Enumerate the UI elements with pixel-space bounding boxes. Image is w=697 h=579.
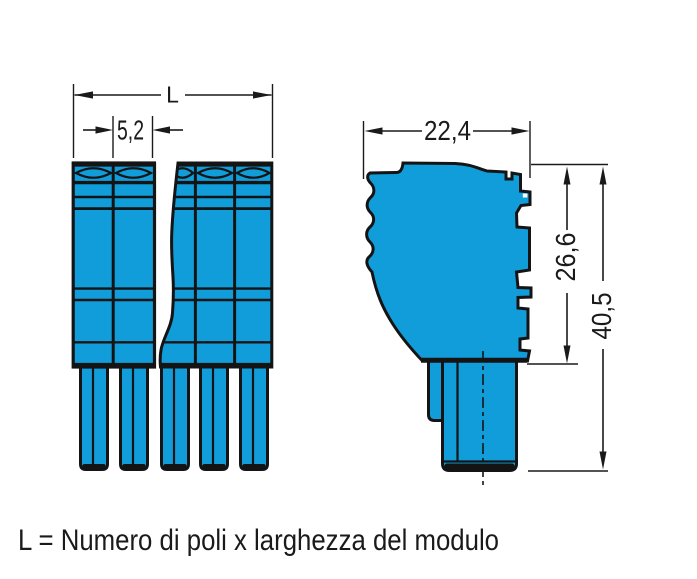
clip-notch (523, 194, 528, 198)
pin (241, 365, 268, 470)
side-view (367, 163, 531, 489)
dimension-depth-label: 22,4 (424, 115, 471, 146)
side-body (367, 163, 531, 361)
pin (81, 365, 108, 470)
dimension-L: L (74, 82, 273, 159)
dimension-total-height-label: 40,5 (586, 293, 617, 340)
connector-drawing-svg: L 5,2 22,4 26,6 40,5 (0, 0, 697, 579)
technical-drawing: L 5,2 22,4 26,6 40,5 (0, 0, 697, 579)
front-body (73, 163, 272, 367)
dimension-pole-width-label: 5,2 (117, 115, 144, 146)
pin (201, 365, 228, 470)
pin (162, 365, 189, 470)
side-pin (429, 359, 517, 471)
dimension-L-label: L (166, 82, 179, 108)
front-pins (81, 365, 268, 470)
dimension-total-height: 40,5 (528, 167, 617, 472)
dimension-body-height-label: 26,6 (550, 233, 581, 282)
caption: L = Numero di poli x larghezza del modul… (18, 524, 499, 557)
pin (121, 365, 148, 470)
dimension-pole-width: 5,2 (83, 115, 183, 159)
front-view (70, 163, 276, 470)
